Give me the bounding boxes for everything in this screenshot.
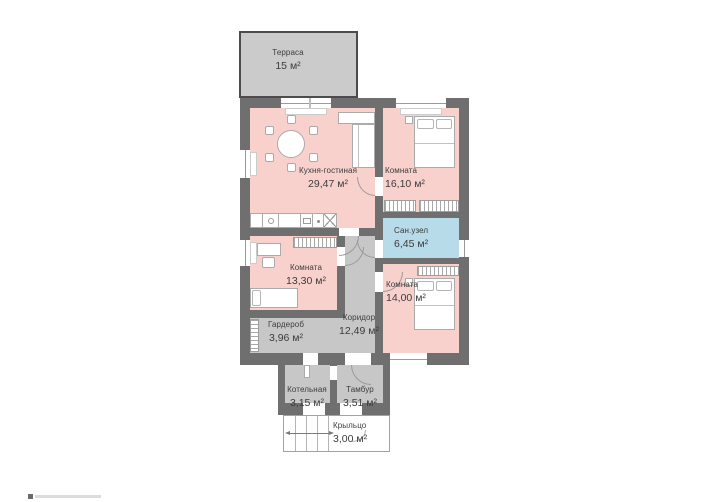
window-sill bbox=[400, 108, 442, 115]
room-label-boiler: Котельная 3,15 м² bbox=[281, 386, 333, 409]
room-area: 29,47 м² bbox=[288, 179, 368, 190]
room-label-wardrobe: Гардероб 3,96 м² bbox=[264, 321, 308, 344]
door-opening bbox=[345, 353, 371, 365]
sofa-icon bbox=[338, 112, 375, 124]
bed-icon bbox=[250, 288, 298, 308]
floor-plan: Терраса 15 м² bbox=[0, 0, 710, 502]
room-area: 3,00 м² bbox=[333, 434, 377, 445]
room-name: Гардероб bbox=[264, 321, 308, 329]
room-name: Крыльцо bbox=[333, 422, 377, 430]
shelving-hatch bbox=[250, 319, 259, 352]
window-frame bbox=[464, 240, 465, 257]
room-label-bathroom: Сан.узел 6,45 м² bbox=[394, 227, 444, 250]
wardrobe-hatch bbox=[419, 200, 459, 212]
room-label-bedroom-14: Комната 14,00 м² bbox=[386, 281, 446, 304]
chair-icon bbox=[309, 126, 318, 135]
blanket-line bbox=[415, 305, 454, 306]
sofa-seam bbox=[358, 125, 359, 167]
room-area: 15 м² bbox=[253, 61, 323, 72]
room-area: 13,30 м² bbox=[283, 276, 329, 287]
chair-icon bbox=[287, 115, 296, 124]
dimension-line bbox=[288, 433, 331, 434]
door-opening bbox=[303, 353, 318, 365]
window bbox=[281, 98, 331, 108]
window-frame bbox=[390, 359, 427, 360]
room-area: 3,15 м² bbox=[281, 398, 333, 409]
window-sill bbox=[250, 152, 257, 176]
room-label-corridor: Коридор 12,49 м² bbox=[333, 314, 385, 337]
room-label-bedroom-16: Комната 16,10 м² bbox=[385, 167, 445, 190]
room-name: Комната bbox=[283, 264, 329, 272]
room-area: 14,00 м² bbox=[386, 293, 446, 304]
watermark-mark bbox=[28, 494, 33, 499]
nightstand-icon bbox=[405, 116, 413, 124]
window-sill bbox=[285, 108, 327, 115]
room-label-bedroom-13: Комната 13,30 м² bbox=[283, 264, 329, 287]
dining-table-icon bbox=[277, 130, 305, 158]
door-opening bbox=[339, 228, 359, 236]
window-frame bbox=[245, 240, 246, 266]
wardrobe-hatch bbox=[417, 266, 459, 276]
chair-icon bbox=[262, 257, 275, 268]
window-sill bbox=[250, 242, 257, 264]
desk-icon bbox=[257, 243, 281, 256]
door-opening bbox=[375, 272, 383, 292]
sink-icon bbox=[262, 213, 279, 228]
room-name: Сан.узел bbox=[394, 227, 444, 235]
room-name: Комната bbox=[386, 281, 446, 289]
pillow-icon bbox=[252, 290, 261, 306]
door-opening bbox=[375, 240, 383, 258]
room-label-porch: Крыльцо 3,00 м² bbox=[333, 422, 377, 445]
dimension-arrow-left bbox=[285, 431, 290, 435]
room-label-kitchen-living: Кухня-гостиная 29,47 м² bbox=[288, 167, 368, 190]
pillow-icon bbox=[436, 119, 452, 129]
sink-bowl bbox=[268, 218, 274, 224]
room-name: Тамбур bbox=[335, 386, 385, 394]
knob bbox=[317, 220, 320, 223]
room-name: Терраса bbox=[253, 49, 323, 57]
door-leaf bbox=[304, 365, 310, 378]
oven-door bbox=[303, 218, 311, 224]
window bbox=[390, 353, 427, 365]
chair-icon bbox=[265, 153, 274, 162]
room-name: Коридор bbox=[333, 314, 385, 322]
window-mullion bbox=[309, 98, 311, 108]
pillow-icon bbox=[417, 119, 434, 129]
chair-icon bbox=[265, 126, 274, 135]
room-name: Котельная bbox=[281, 386, 333, 394]
window bbox=[240, 150, 250, 178]
room-area: 16,10 м² bbox=[385, 179, 445, 190]
room-area: 12,49 м² bbox=[333, 326, 385, 337]
door-opening bbox=[375, 177, 383, 196]
stove-icon bbox=[323, 213, 337, 228]
window bbox=[240, 240, 250, 266]
room-name: Кухня-гостиная bbox=[288, 167, 368, 175]
chair-icon bbox=[309, 153, 318, 162]
room-area: 6,45 м² bbox=[394, 239, 444, 250]
room-terrace: Терраса 15 м² bbox=[239, 31, 358, 98]
kitchen-cabinet-icon bbox=[278, 213, 301, 228]
blanket-line bbox=[415, 143, 454, 144]
watermark-logo bbox=[28, 494, 103, 501]
wardrobe-hatch bbox=[293, 237, 337, 248]
window-frame bbox=[245, 150, 246, 178]
sofa-icon bbox=[352, 124, 375, 168]
watermark-text-strip bbox=[35, 495, 101, 498]
window bbox=[396, 98, 446, 108]
room-label-terrace: Терраса 15 м² bbox=[253, 49, 323, 72]
window-frame bbox=[396, 103, 446, 104]
bed-icon bbox=[414, 116, 455, 168]
door-opening bbox=[330, 366, 337, 380]
window bbox=[459, 240, 469, 257]
room-label-tambour: Тамбур 3,51 м² bbox=[335, 386, 385, 409]
room-area: 3,96 м² bbox=[264, 333, 308, 344]
window-frame bbox=[281, 103, 331, 104]
wardrobe-hatch bbox=[384, 200, 416, 212]
room-area: 3,51 м² bbox=[335, 398, 385, 409]
room-name: Комната bbox=[385, 167, 445, 175]
